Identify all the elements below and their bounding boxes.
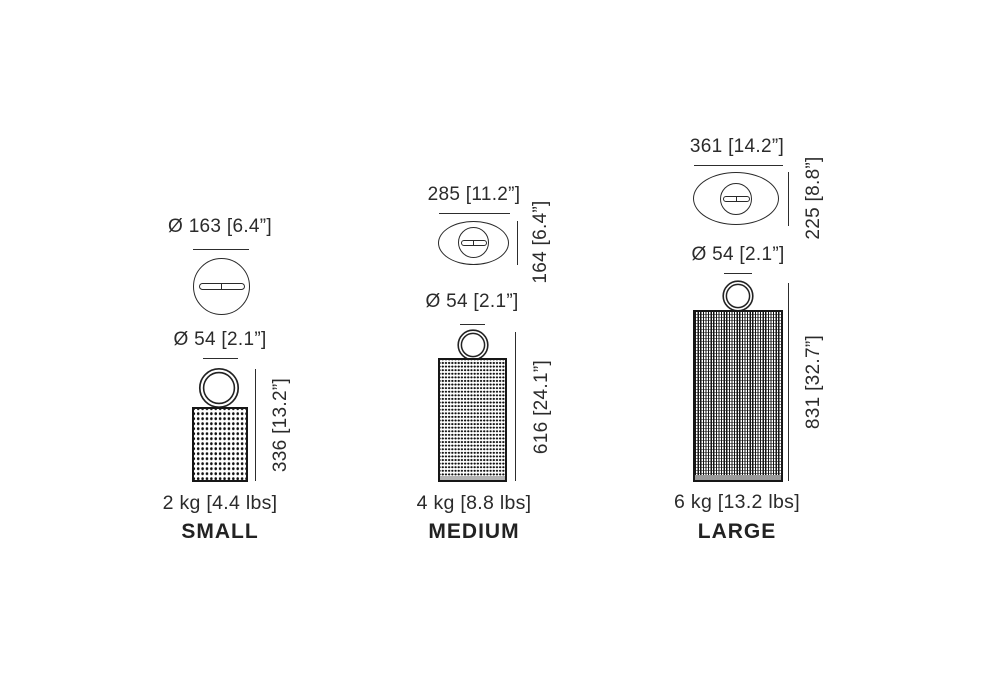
body-height-dimline (788, 283, 789, 481)
handle-dimline (724, 273, 752, 274)
speaker-body (192, 407, 248, 482)
top-depth-label: 164 [6.4”] (530, 197, 552, 287)
handle-ring-icon (197, 366, 241, 410)
body-height-dimline (255, 369, 256, 481)
top-depth-dimline (517, 221, 518, 265)
speaker-body (693, 310, 783, 482)
weight-label: 4 kg [8.8 lbs] (364, 492, 584, 515)
top-width-dimline (439, 213, 510, 214)
handle-dimline (460, 324, 485, 325)
body-height-label: 831 [32.7”] (803, 317, 825, 447)
top-depth-dimline (788, 172, 789, 226)
center-mark (473, 241, 474, 245)
handle-ring-icon (720, 278, 756, 314)
base-strip (440, 476, 505, 480)
center-mark (221, 284, 222, 289)
body-height-label: 336 [13.2”] (270, 370, 292, 480)
size-name: MEDIUM (364, 520, 584, 544)
top-depth-label: 225 [8.8”] (803, 153, 825, 243)
base-strip (695, 475, 781, 480)
weight-label: 6 kg [13.2 lbs] (627, 491, 847, 514)
handle-diameter-label: Ø 54 [2.1”] (362, 291, 582, 313)
top-width-dimline (193, 249, 249, 250)
top-width-dimline (694, 165, 783, 166)
body-height-label: 616 [24.1”] (531, 347, 553, 467)
body-height-dimline (515, 332, 516, 481)
handle-dimline (203, 358, 238, 359)
dimension-diagram: Ø 163 [6.4”] Ø 54 [2.1”] 336 [13.2”] 2 k… (0, 0, 1000, 700)
handle-diameter-label: Ø 54 [2.1”] (628, 244, 848, 266)
speaker-body (438, 358, 507, 482)
handle-diameter-label: Ø 54 [2.1”] (110, 329, 330, 351)
center-mark (736, 197, 737, 201)
weight-label: 2 kg [4.4 lbs] (110, 492, 330, 515)
size-name: LARGE (627, 520, 847, 544)
size-name: SMALL (110, 520, 330, 544)
top-diameter-label: Ø 163 [6.4”] (110, 216, 330, 238)
